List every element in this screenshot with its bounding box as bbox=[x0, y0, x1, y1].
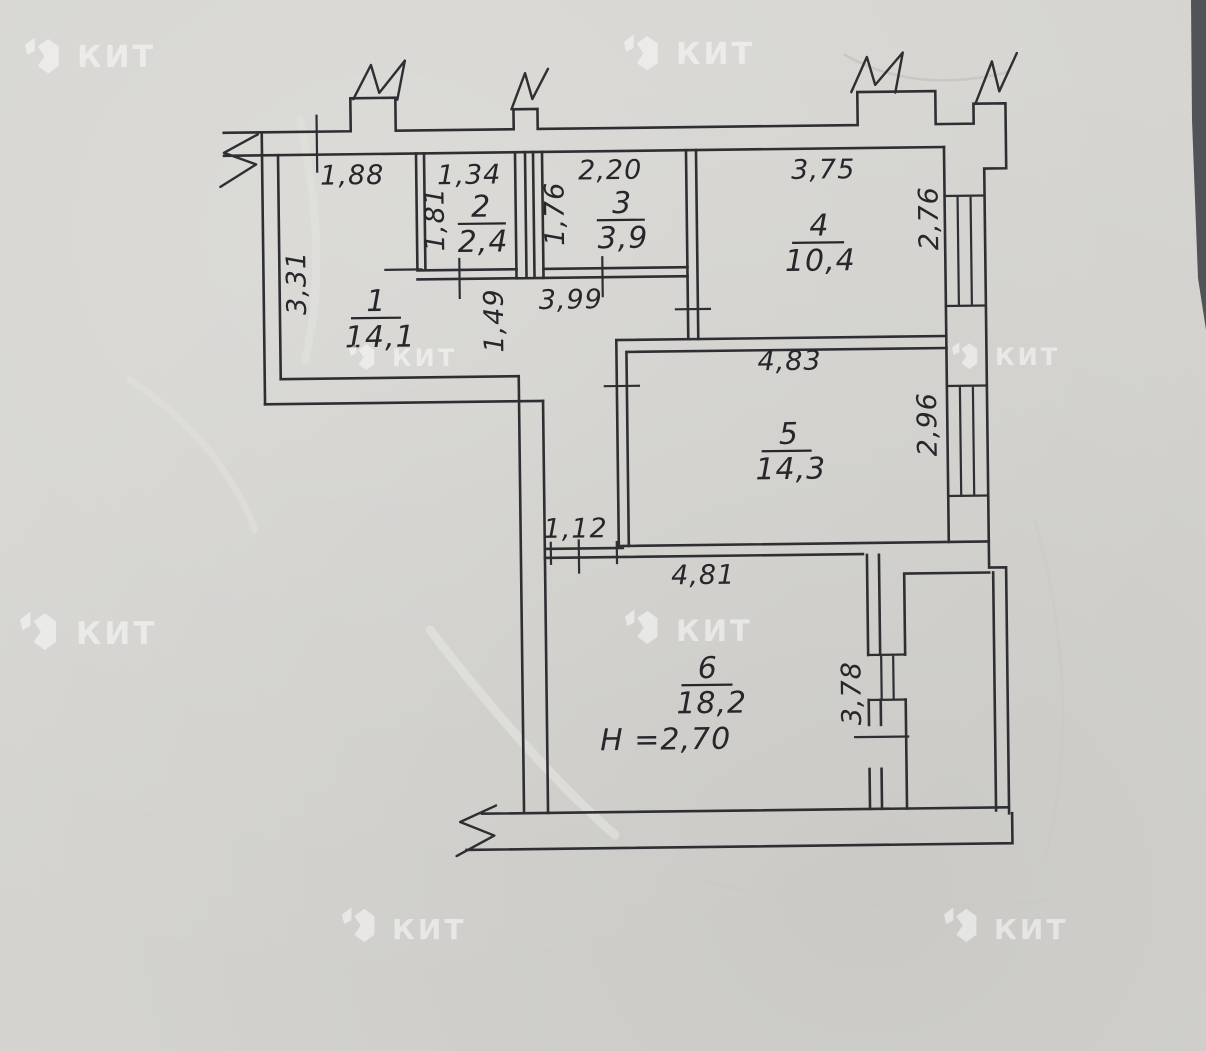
dim-hall-height: 1,49 bbox=[479, 288, 511, 352]
svg-text:КИТ: КИТ bbox=[995, 343, 1060, 371]
dim-room4-top: 3,75 bbox=[791, 154, 855, 186]
dim-room2-top: 1,34 bbox=[437, 159, 501, 191]
dim-room3-left: 1,76 bbox=[539, 182, 571, 246]
svg-text:18,2: 18,2 bbox=[676, 685, 747, 721]
svg-text:2,4: 2,4 bbox=[458, 224, 509, 260]
svg-text:3,9: 3,9 bbox=[597, 221, 648, 257]
dim-room2-left: 1,81 bbox=[419, 187, 451, 251]
svg-text:2: 2 bbox=[471, 190, 491, 225]
dim-room1-top: 1,88 bbox=[320, 160, 384, 192]
svg-text:КИТ: КИТ bbox=[676, 614, 753, 648]
ceiling-height-note: H =2,70 bbox=[600, 722, 731, 759]
svg-text:10,4: 10,4 bbox=[785, 243, 856, 279]
kit-watermark: КИТ bbox=[349, 343, 457, 372]
svg-text:14,3: 14,3 bbox=[755, 451, 826, 487]
dim-room6-right: 3,78 bbox=[836, 661, 868, 725]
floor-plan-photo: 1,88 1,34 2,20 3,75 3,31 1,81 1,76 2,76 … bbox=[0, 0, 1206, 1051]
svg-text:1: 1 bbox=[366, 284, 386, 319]
svg-text:КИТ: КИТ bbox=[676, 37, 755, 72]
kit-watermark: КИТ bbox=[952, 342, 1060, 371]
dim-room3-top: 2,20 bbox=[578, 155, 642, 187]
dim-room4-right: 2,76 bbox=[913, 186, 945, 250]
svg-text:КИТ: КИТ bbox=[392, 913, 466, 946]
svg-text:6: 6 bbox=[698, 651, 718, 686]
svg-text:КИТ: КИТ bbox=[77, 40, 156, 75]
floor-plan-svg: 1,88 1,34 2,20 3,75 3,31 1,81 1,76 2,76 … bbox=[0, 0, 1206, 1051]
dim-room5-top: 4,83 bbox=[757, 346, 821, 378]
svg-text:КИТ: КИТ bbox=[76, 616, 157, 652]
svg-text:КИТ: КИТ bbox=[994, 913, 1068, 946]
dim-hall-width: 3,99 bbox=[539, 284, 603, 316]
kit-watermark: КИТ bbox=[624, 35, 755, 73]
dim-room6-top: 4,81 bbox=[671, 560, 735, 592]
svg-text:5: 5 bbox=[779, 417, 799, 452]
svg-text:4: 4 bbox=[809, 208, 829, 243]
svg-text:КИТ: КИТ bbox=[392, 344, 457, 372]
dim-room5-right: 2,96 bbox=[912, 392, 944, 456]
kit-watermark: КИТ bbox=[25, 38, 156, 76]
dim-room6-doorway: 1,12 bbox=[543, 513, 607, 545]
svg-text:3: 3 bbox=[612, 186, 632, 221]
dim-room1-left: 3,31 bbox=[281, 251, 313, 315]
